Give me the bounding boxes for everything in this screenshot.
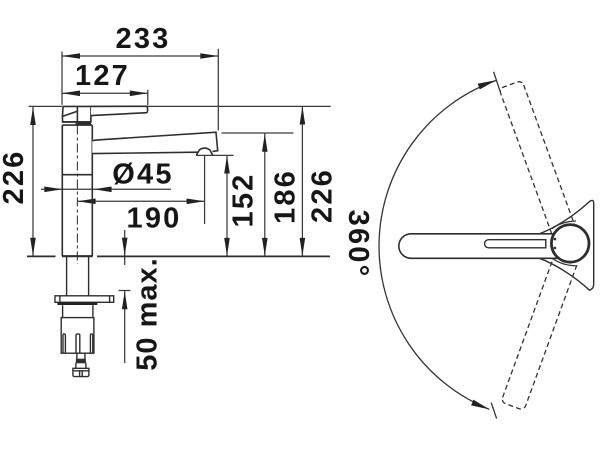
svg-text:226: 226 — [0, 150, 30, 205]
svg-text:186: 186 — [270, 169, 302, 224]
svg-text:226: 226 — [307, 168, 339, 223]
svg-text:127: 127 — [75, 60, 130, 92]
svg-text:233: 233 — [116, 23, 171, 55]
svg-text:190: 190 — [127, 203, 182, 235]
svg-text:152: 152 — [228, 173, 260, 228]
svg-text:50 max.: 50 max. — [132, 257, 164, 370]
svg-text:Ø45: Ø45 — [112, 159, 173, 191]
svg-text:360°: 360° — [342, 210, 374, 279]
